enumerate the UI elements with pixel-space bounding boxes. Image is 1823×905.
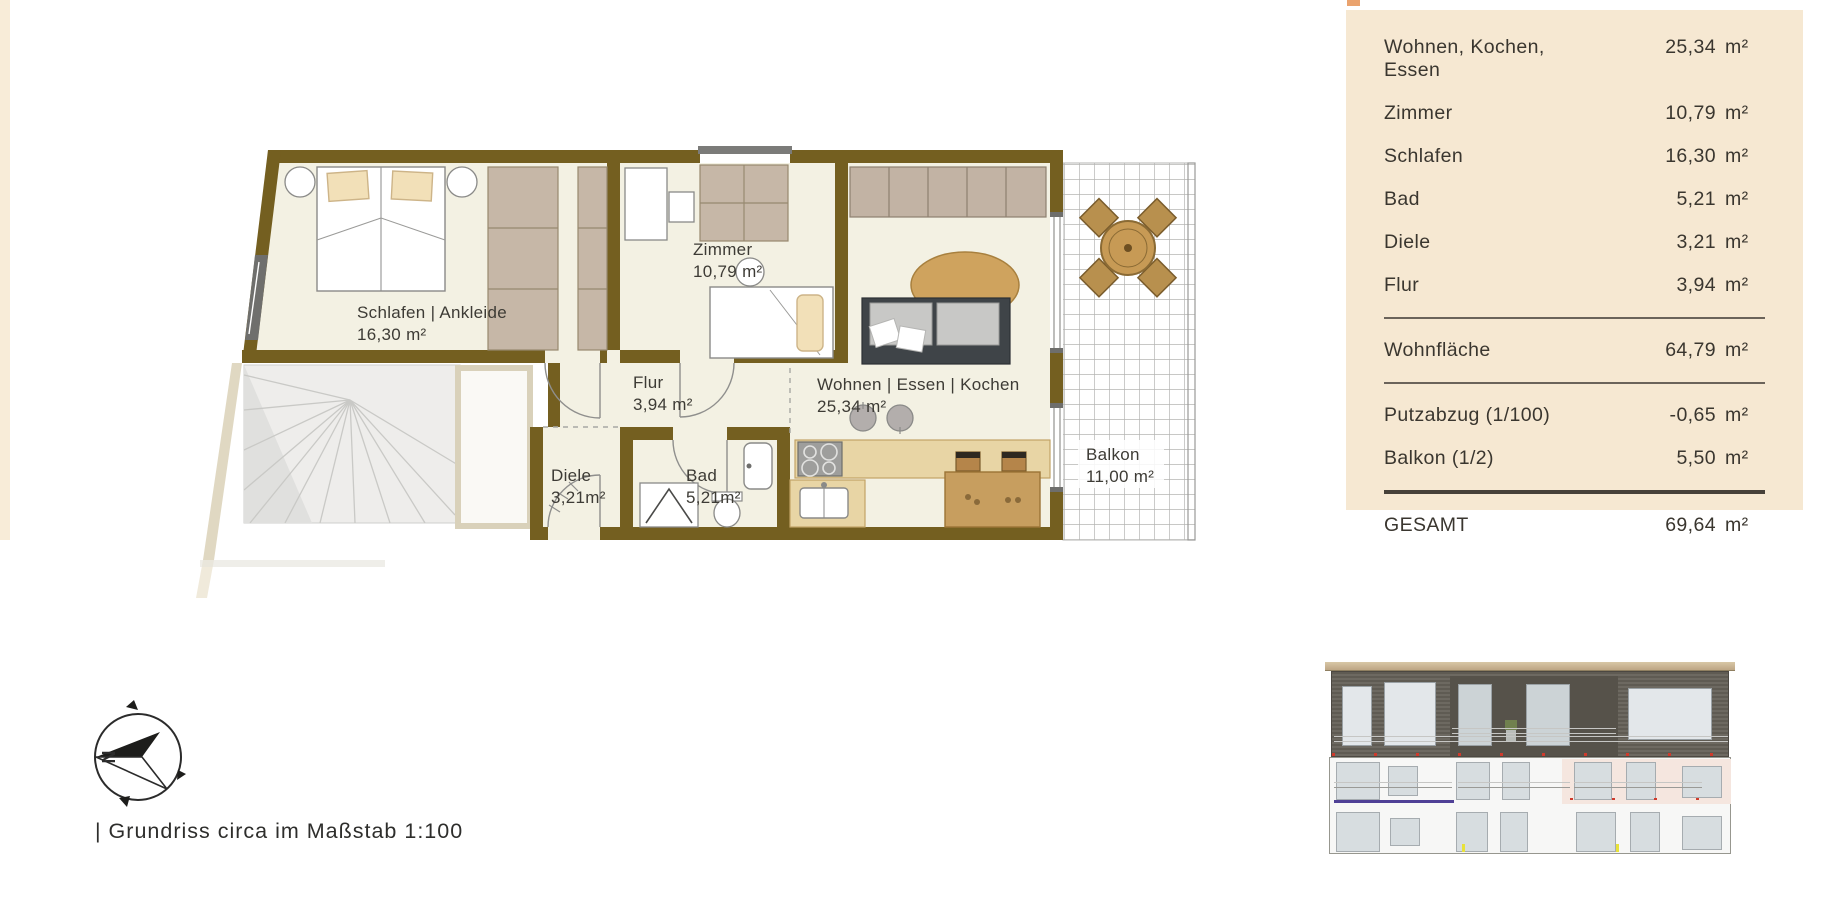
table-divider bbox=[1384, 317, 1765, 319]
elevator-shaft bbox=[458, 368, 530, 526]
elevation-window bbox=[1682, 816, 1722, 850]
pillow bbox=[391, 171, 432, 201]
label-bad: Bad bbox=[686, 466, 717, 485]
wardrobe bbox=[488, 167, 607, 350]
elevation-lower-floors bbox=[1329, 757, 1731, 854]
row-value: 5,21 bbox=[1626, 188, 1716, 211]
desk-chair bbox=[669, 192, 694, 222]
label-schlafen-area: 16,30 m² bbox=[357, 325, 427, 344]
zimmer-closet bbox=[700, 165, 788, 241]
page-edge-strip bbox=[0, 0, 10, 540]
elevation-yellow-tick bbox=[1462, 844, 1465, 852]
label-wohnen: Wohnen | Essen | Kochen bbox=[817, 375, 1020, 394]
elevation-window bbox=[1390, 818, 1420, 846]
pillow bbox=[797, 295, 823, 351]
label-diele: Diele bbox=[551, 466, 591, 485]
elevation-red-markers bbox=[1570, 798, 1702, 800]
row-value: 10,79 bbox=[1626, 102, 1716, 125]
panel-accent-mark bbox=[1347, 0, 1360, 6]
building-elevation bbox=[1325, 660, 1735, 856]
elevation-purple-band bbox=[1334, 800, 1454, 803]
label-flur: Flur bbox=[633, 373, 664, 392]
elevation-window bbox=[1626, 762, 1656, 800]
row-value: 5,50 bbox=[1626, 447, 1716, 470]
table-divider bbox=[1384, 382, 1765, 384]
label-bad-area: 5,21m² bbox=[686, 488, 741, 507]
elevation-red-markers bbox=[1332, 753, 1730, 756]
row-unit: m² bbox=[1716, 36, 1765, 59]
table-row: Putzabzug (1/100) -0,65 m² bbox=[1384, 404, 1765, 427]
row-label: Wohnen, Kochen, Essen bbox=[1384, 36, 1626, 82]
sofa-pillow bbox=[896, 326, 925, 352]
row-value: 3,94 bbox=[1626, 274, 1716, 297]
row-value: 64,79 bbox=[1626, 339, 1716, 362]
elevation-railing bbox=[1452, 728, 1616, 734]
row-unit: m² bbox=[1716, 102, 1765, 125]
row-unit: m² bbox=[1716, 188, 1765, 211]
elevation-top-floor bbox=[1331, 671, 1729, 757]
compass-north-label: N bbox=[99, 751, 119, 764]
row-value: -0,65 bbox=[1626, 404, 1716, 427]
elevation-balcony-recess bbox=[1450, 676, 1618, 756]
table-row: Wohnen, Kochen, Essen 25,34 m² bbox=[1384, 36, 1765, 82]
row-unit: m² bbox=[1716, 514, 1765, 537]
row-label-line1: Wohnen, Kochen, bbox=[1384, 36, 1626, 59]
label-balkon-area: 11,00 m² bbox=[1086, 467, 1154, 486]
label-zimmer: Zimmer bbox=[693, 240, 752, 259]
row-unit: m² bbox=[1716, 231, 1765, 254]
row-unit: m² bbox=[1716, 447, 1765, 470]
label-flur-area: 3,94 m² bbox=[633, 395, 693, 414]
row-unit: m² bbox=[1716, 404, 1765, 427]
bedside-table bbox=[285, 167, 315, 197]
table-row: Zimmer 10,79 m² bbox=[1384, 102, 1765, 125]
row-unit: m² bbox=[1716, 274, 1765, 297]
row-label: Flur bbox=[1384, 274, 1626, 297]
table-row: Diele 3,21 m² bbox=[1384, 231, 1765, 254]
table-divider-total bbox=[1384, 490, 1765, 494]
elevation-railing bbox=[1574, 782, 1702, 788]
row-label: Wohnfläche bbox=[1384, 339, 1626, 362]
elevation-window bbox=[1630, 812, 1660, 852]
row-label: GESAMT bbox=[1384, 514, 1626, 537]
row-label: Schlafen bbox=[1384, 145, 1626, 168]
row-label: Putzabzug (1/100) bbox=[1384, 404, 1626, 427]
row-value: 25,34 bbox=[1626, 36, 1716, 59]
label-zimmer-area: 10,79 m² bbox=[693, 262, 763, 281]
row-value: 16,30 bbox=[1626, 145, 1716, 168]
table-row-gesamt: GESAMT 69,64 m² bbox=[1384, 514, 1765, 537]
table-row: Bad 5,21 m² bbox=[1384, 188, 1765, 211]
row-label-line2: Essen bbox=[1384, 59, 1626, 82]
elevation-window bbox=[1500, 812, 1528, 852]
label-diele-area: 3,21m² bbox=[551, 488, 606, 507]
stairwell bbox=[196, 363, 530, 598]
table-row-wohnflaeche: Wohnfläche 64,79 m² bbox=[1384, 339, 1765, 362]
elevation-roof bbox=[1325, 662, 1735, 671]
elevation-window bbox=[1574, 762, 1612, 800]
elevation-window bbox=[1628, 688, 1712, 740]
label-balkon: Balkon bbox=[1086, 445, 1140, 464]
bedside-table bbox=[447, 167, 477, 197]
elevation-window bbox=[1456, 812, 1488, 852]
elevation-railing bbox=[1458, 782, 1570, 788]
elevation-window bbox=[1502, 762, 1530, 800]
pillow bbox=[327, 171, 369, 202]
elevation-railing bbox=[1334, 782, 1452, 788]
elevation-window bbox=[1336, 762, 1380, 800]
dining-table bbox=[945, 472, 1040, 527]
row-label: Bad bbox=[1384, 188, 1626, 211]
row-unit: m² bbox=[1716, 339, 1765, 362]
shelf-row bbox=[850, 167, 1046, 217]
row-label: Zimmer bbox=[1384, 102, 1626, 125]
area-table: Wohnen, Kochen, Essen 25,34 m² Zimmer 10… bbox=[1346, 10, 1803, 510]
row-value: 69,64 bbox=[1626, 514, 1716, 537]
sofa bbox=[862, 298, 1010, 364]
label-wohnen-area: 25,34 m² bbox=[817, 397, 887, 416]
row-label: Balkon (1/2) bbox=[1384, 447, 1626, 470]
elevation-window bbox=[1388, 766, 1418, 796]
elevation-window bbox=[1336, 812, 1380, 852]
table-row: Balkon (1/2) 5,50 m² bbox=[1384, 447, 1765, 470]
elevation-railing bbox=[1334, 736, 1728, 742]
floorplan-page: Schlafen | Ankleide 16,30 m² Zimmer 10,7… bbox=[0, 0, 1823, 900]
elevation-window bbox=[1576, 812, 1616, 852]
table-row: Flur 3,94 m² bbox=[1384, 274, 1765, 297]
elevation-yellow-tick bbox=[1616, 844, 1619, 852]
label-schlafen: Schlafen | Ankleide bbox=[357, 303, 507, 322]
row-unit: m² bbox=[1716, 145, 1765, 168]
table-row: Schlafen 16,30 m² bbox=[1384, 145, 1765, 168]
kitchen-sink-counter bbox=[790, 480, 865, 527]
compass-icon: N bbox=[95, 700, 186, 807]
row-label: Diele bbox=[1384, 231, 1626, 254]
elevation-window bbox=[1456, 762, 1490, 800]
row-value: 3,21 bbox=[1626, 231, 1716, 254]
scale-caption: | Grundriss circa im Maßstab 1:100 bbox=[95, 819, 463, 843]
